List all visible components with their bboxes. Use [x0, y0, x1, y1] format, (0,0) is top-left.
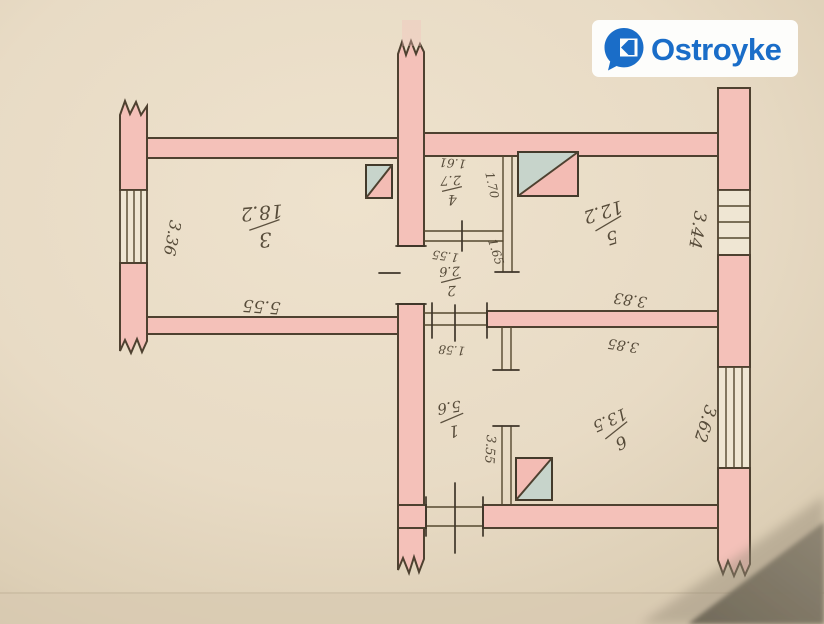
- wall-middle-right: [487, 311, 718, 327]
- dim-5-55: 5.55: [242, 295, 281, 318]
- vent-shaft-room5: [518, 152, 578, 196]
- vent-shaft-room3: [366, 165, 392, 198]
- dim-1-61: 1.61: [439, 155, 467, 171]
- wall-right-middle: [718, 255, 750, 367]
- wall-bottom-left-stub: [398, 505, 426, 528]
- room1-width-dim: 1.58: [438, 342, 466, 358]
- room3-number: 3: [258, 227, 273, 252]
- room1-depth-dim: 3.55: [481, 434, 498, 464]
- room4-area: 2.7: [439, 172, 462, 188]
- room2-number: 2: [447, 282, 458, 299]
- room3-area: 18.2: [240, 199, 284, 225]
- logo-text: Ostroyke: [651, 32, 782, 67]
- wall-right-upper: [718, 88, 750, 190]
- vent-shaft-room6: [516, 458, 552, 500]
- wall-top-left-section: [147, 138, 398, 158]
- room4-width-dim: 1.61: [439, 155, 467, 171]
- wall-middle-left: [147, 317, 398, 334]
- photo-of-floor-plan: 3 18.2 5.55 3.36 4 2.7 1.61 1.70 2 2.6: [0, 0, 824, 624]
- ostroyke-logo[interactable]: Ostroyke: [592, 20, 798, 77]
- wall-left-upper: [120, 101, 147, 190]
- dim-3-55: 3.55: [481, 434, 498, 464]
- room4-number: 4: [448, 191, 458, 207]
- wall-smudge-top: [402, 20, 421, 46]
- room1-area: 5.6: [435, 397, 462, 419]
- wall-left-lower: [120, 263, 147, 353]
- room3-width-dim: 5.55: [242, 295, 281, 318]
- dim-1-58: 1.58: [438, 342, 466, 358]
- wall-bottom-right: [483, 505, 750, 528]
- wall-center-upper: [398, 41, 424, 246]
- wall-center-lower: [398, 304, 424, 573]
